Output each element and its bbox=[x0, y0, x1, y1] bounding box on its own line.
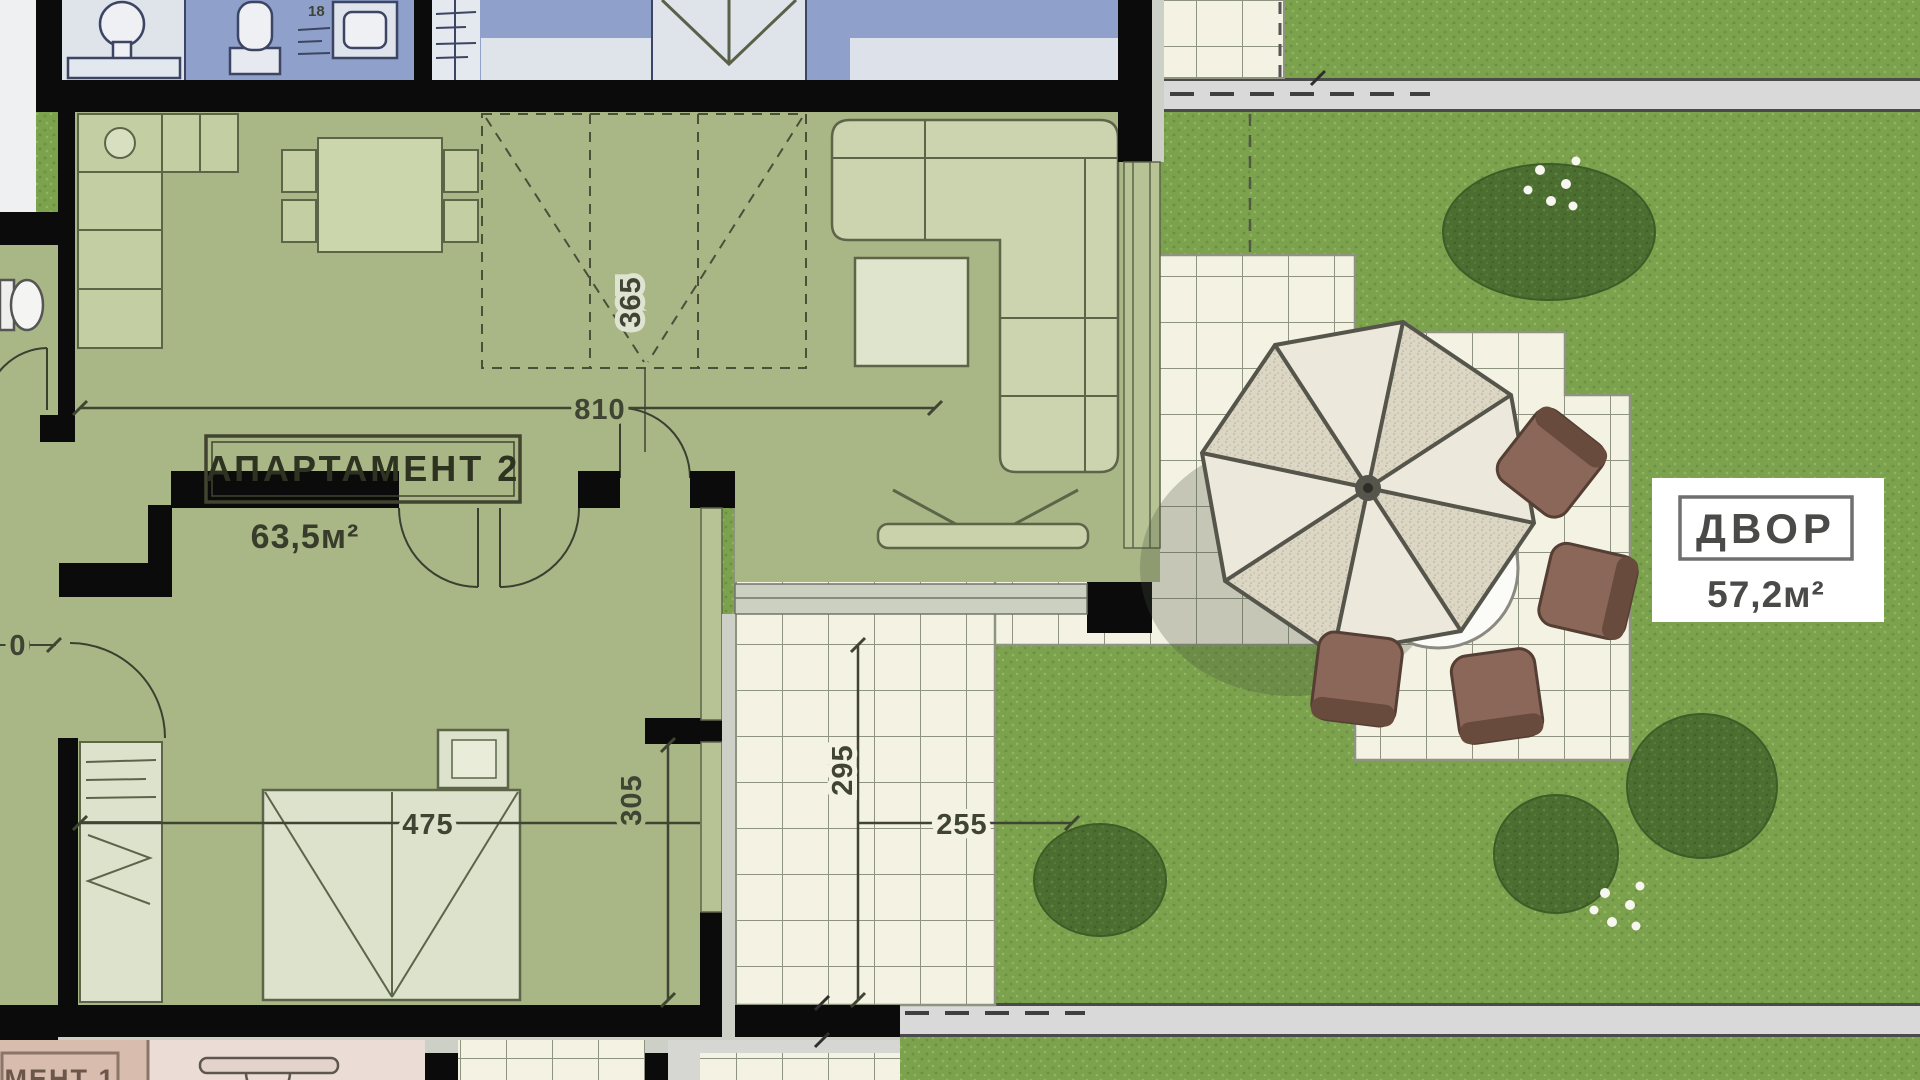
wall-segment bbox=[148, 505, 172, 563]
wall-segment bbox=[40, 415, 75, 442]
washbasin-inner-icon bbox=[344, 12, 386, 48]
wall-segment bbox=[58, 112, 75, 442]
bedroom-wardrobe bbox=[80, 822, 162, 1002]
apartment1-label-partial: МЕНТ 1 bbox=[4, 1064, 115, 1080]
patio-chair-icon bbox=[1536, 540, 1641, 642]
wall-outer-face bbox=[722, 614, 735, 1040]
bottom-sidewalk bbox=[895, 1003, 1920, 1037]
toilet-bowl-icon bbox=[238, 2, 272, 50]
living-south-window bbox=[735, 584, 1087, 614]
top-sidewalk bbox=[1156, 78, 1920, 112]
washing-machine bbox=[80, 742, 162, 822]
vanity-counter-icon bbox=[68, 58, 180, 78]
upper-bed bbox=[850, 38, 1118, 80]
dimension-top-partial: 18 bbox=[308, 3, 325, 20]
wall-segment bbox=[40, 80, 1152, 112]
toilet-tank-icon bbox=[230, 48, 280, 74]
bed bbox=[263, 790, 520, 1000]
svg-text:255: 255 bbox=[936, 809, 987, 841]
neighbor-hallway-floor bbox=[0, 245, 62, 1005]
dining-chair-icon bbox=[282, 150, 316, 192]
upper-terrace-tiles bbox=[1156, 0, 1284, 78]
bedroom-window-upper bbox=[701, 508, 722, 720]
kitchen-sink-icon bbox=[105, 128, 135, 158]
coffee-table bbox=[855, 258, 968, 366]
dining-chair-icon bbox=[444, 150, 478, 192]
svg-text:305: 305 bbox=[616, 774, 648, 825]
yard-area: 57,2м² bbox=[1707, 574, 1825, 615]
yard-name: ДВОР bbox=[1696, 505, 1836, 552]
yard-label: ДВОР 57,2м² bbox=[1652, 478, 1884, 622]
wall-segment bbox=[414, 0, 432, 80]
walkway-tiles bbox=[735, 508, 995, 1005]
apartment2-area: 63,5м² bbox=[251, 518, 360, 556]
wall-segment bbox=[0, 1005, 900, 1040]
nightstand-top-icon bbox=[452, 740, 496, 778]
wall-segment bbox=[690, 471, 735, 508]
svg-text:0: 0 bbox=[9, 630, 26, 662]
sink-icon bbox=[100, 2, 144, 46]
upper-counter bbox=[481, 38, 651, 80]
toilet-bowl-icon bbox=[11, 280, 43, 330]
svg-text:365: 365 bbox=[615, 276, 647, 327]
floor-plan-canvas: 18 bbox=[0, 0, 1920, 1080]
bush-icon bbox=[1034, 824, 1166, 936]
dining-chair-icon bbox=[444, 200, 478, 242]
bush-icon bbox=[1627, 714, 1777, 858]
lower-terrace-tiles bbox=[700, 1053, 900, 1080]
wall-outer-face bbox=[1152, 0, 1164, 162]
wall-segment bbox=[578, 471, 620, 508]
svg-text:810: 810 bbox=[574, 394, 625, 426]
neighbor-wc bbox=[0, 280, 43, 330]
dimension-365: 365 bbox=[615, 276, 647, 327]
living-window bbox=[1124, 162, 1160, 548]
floor-plan-page: 18 bbox=[0, 0, 1920, 1080]
lower-terrace-tiles bbox=[458, 1040, 645, 1080]
bush-icon bbox=[1443, 164, 1655, 300]
dining-table bbox=[318, 138, 442, 252]
patio-chair-icon bbox=[1449, 647, 1544, 746]
bottom-sidewalk-surface bbox=[895, 1003, 1920, 1037]
apartment2-name: АПАРТАМЕНТ 2 bbox=[206, 448, 521, 489]
wall-segment bbox=[645, 718, 722, 744]
svg-text:475: 475 bbox=[402, 809, 453, 841]
wall-segment bbox=[1118, 0, 1152, 162]
patio-chair-icon bbox=[1310, 630, 1404, 728]
svg-text:295: 295 bbox=[827, 744, 859, 795]
dining-chair-icon bbox=[282, 200, 316, 242]
wall-segment bbox=[700, 912, 722, 1012]
wall-segment bbox=[59, 563, 172, 597]
wall-segment bbox=[58, 738, 78, 1005]
bedroom-terrace-door bbox=[701, 742, 722, 912]
bush-icon bbox=[1494, 795, 1618, 913]
stairwell-room bbox=[0, 0, 36, 212]
